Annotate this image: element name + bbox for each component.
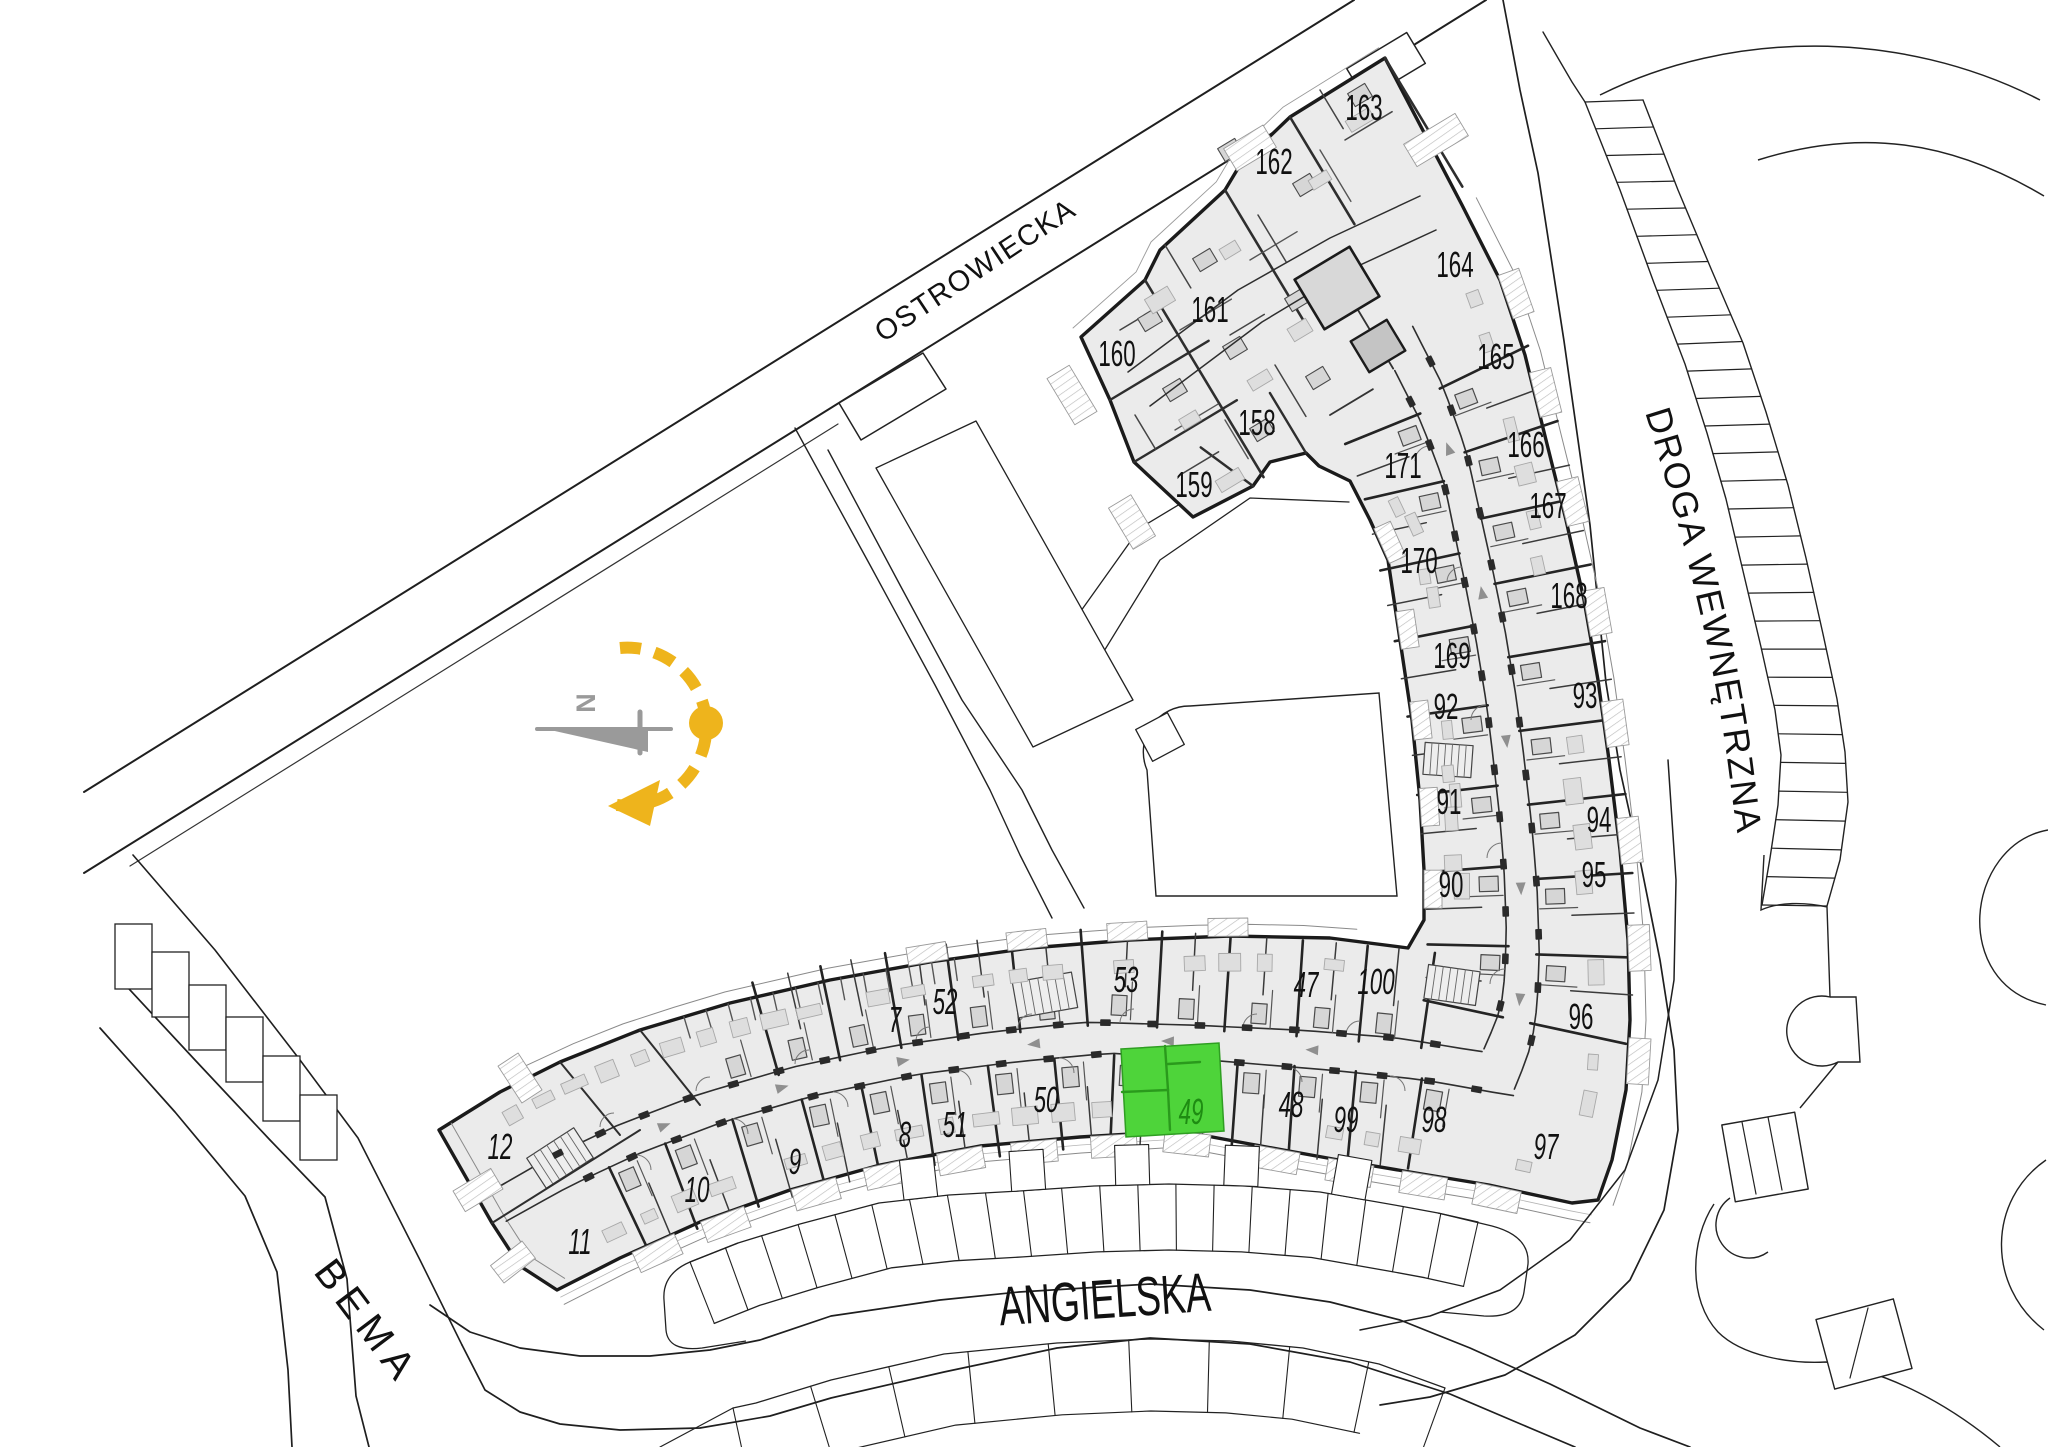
- svg-text:93: 93: [1573, 677, 1598, 717]
- svg-text:50: 50: [1034, 1081, 1059, 1121]
- svg-text:167: 167: [1529, 487, 1566, 527]
- svg-text:94: 94: [1587, 801, 1612, 841]
- svg-text:170: 170: [1400, 542, 1437, 582]
- svg-text:53: 53: [1114, 961, 1139, 1001]
- svg-text:9: 9: [789, 1143, 802, 1183]
- svg-text:166: 166: [1507, 426, 1544, 466]
- svg-text:N: N: [571, 693, 601, 713]
- svg-text:100: 100: [1357, 963, 1394, 1003]
- svg-text:10: 10: [685, 1171, 710, 1211]
- svg-text:98: 98: [1422, 1101, 1447, 1141]
- svg-text:95: 95: [1582, 856, 1607, 896]
- svg-text:163: 163: [1345, 89, 1382, 129]
- svg-text:158: 158: [1238, 404, 1275, 444]
- svg-text:164: 164: [1436, 246, 1473, 286]
- svg-text:97: 97: [1534, 1128, 1560, 1168]
- svg-text:99: 99: [1334, 1101, 1359, 1141]
- svg-text:92: 92: [1434, 688, 1459, 728]
- svg-text:51: 51: [943, 1106, 968, 1146]
- svg-text:160: 160: [1098, 335, 1135, 375]
- svg-text:168: 168: [1550, 577, 1587, 617]
- svg-text:48: 48: [1279, 1086, 1304, 1126]
- svg-text:96: 96: [1569, 998, 1594, 1038]
- svg-text:11: 11: [568, 1223, 591, 1263]
- svg-text:161: 161: [1191, 291, 1228, 331]
- svg-text:171: 171: [1384, 447, 1421, 487]
- svg-text:91: 91: [1437, 783, 1462, 823]
- svg-text:165: 165: [1477, 338, 1514, 378]
- svg-text:47: 47: [1294, 966, 1320, 1006]
- svg-text:162: 162: [1255, 143, 1292, 183]
- svg-text:90: 90: [1439, 866, 1464, 906]
- svg-text:8: 8: [899, 1116, 912, 1156]
- svg-text:159: 159: [1175, 466, 1212, 506]
- svg-text:169: 169: [1433, 637, 1470, 677]
- svg-text:49: 49: [1179, 1093, 1204, 1133]
- svg-text:12: 12: [488, 1128, 513, 1168]
- svg-text:7: 7: [889, 1001, 902, 1041]
- svg-text:52: 52: [933, 983, 958, 1023]
